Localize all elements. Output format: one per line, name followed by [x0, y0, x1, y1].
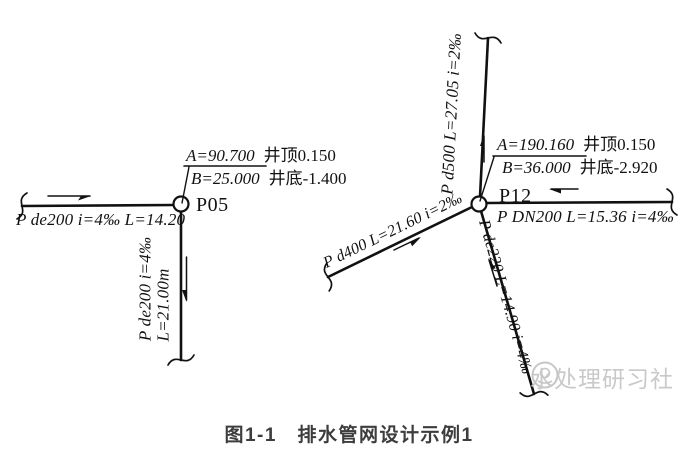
p12-b-note: 井底-2.920	[580, 159, 658, 177]
pipe-inlet-west	[22, 205, 174, 206]
p12-a-note: 井顶0.150	[583, 136, 655, 154]
p05-a-value: A=90.700	[186, 147, 255, 165]
p05-a-note: 井顶0.150	[264, 147, 336, 165]
pipe-label-outlet-south-spec: P de200 i=4‰	[137, 237, 156, 341]
p05-b-note: 井底-1.400	[269, 170, 347, 188]
watermark: 水处理研习社	[530, 360, 674, 394]
p12-b-value: B=36.000	[502, 159, 571, 177]
pipe-label-outlet-south-length: L=21.00m	[155, 268, 174, 341]
figure-drainage-network-diagram: A=90.700 井顶0.150 B=25.000 井底-1.400 P05 A…	[0, 0, 698, 453]
manhole-p12-top-row: A=190.160 井顶0.150	[497, 136, 655, 154]
pipe-label-inlet-west: P de200 i=4‰ L=14.20	[16, 211, 185, 230]
manhole-p12-bottom-row: B=36.000 井底-2.920	[502, 159, 658, 177]
flow-arrow-southwest-head-icon	[410, 237, 421, 246]
manhole-p05-top-row: A=90.700 井顶0.150	[186, 147, 336, 165]
p05-b-value: B=25.000	[191, 170, 260, 188]
figure-caption: 图1-1 排水管网设计示例1	[0, 420, 698, 447]
manhole-p05-bottom-row: B=25.000 井底-1.400	[191, 170, 347, 188]
manhole-p12-symbol	[472, 197, 487, 212]
pipe-outlet-north	[480, 38, 488, 197]
watermark-text: 水处理研习社	[530, 360, 674, 394]
p12-a-value: A=190.160	[497, 136, 574, 154]
manhole-p12-label: P12	[499, 185, 532, 208]
pipe-label-inlet-east: P DN200 L=15.36 i=4‰	[497, 208, 674, 227]
manhole-p05-label: P05	[196, 194, 229, 217]
